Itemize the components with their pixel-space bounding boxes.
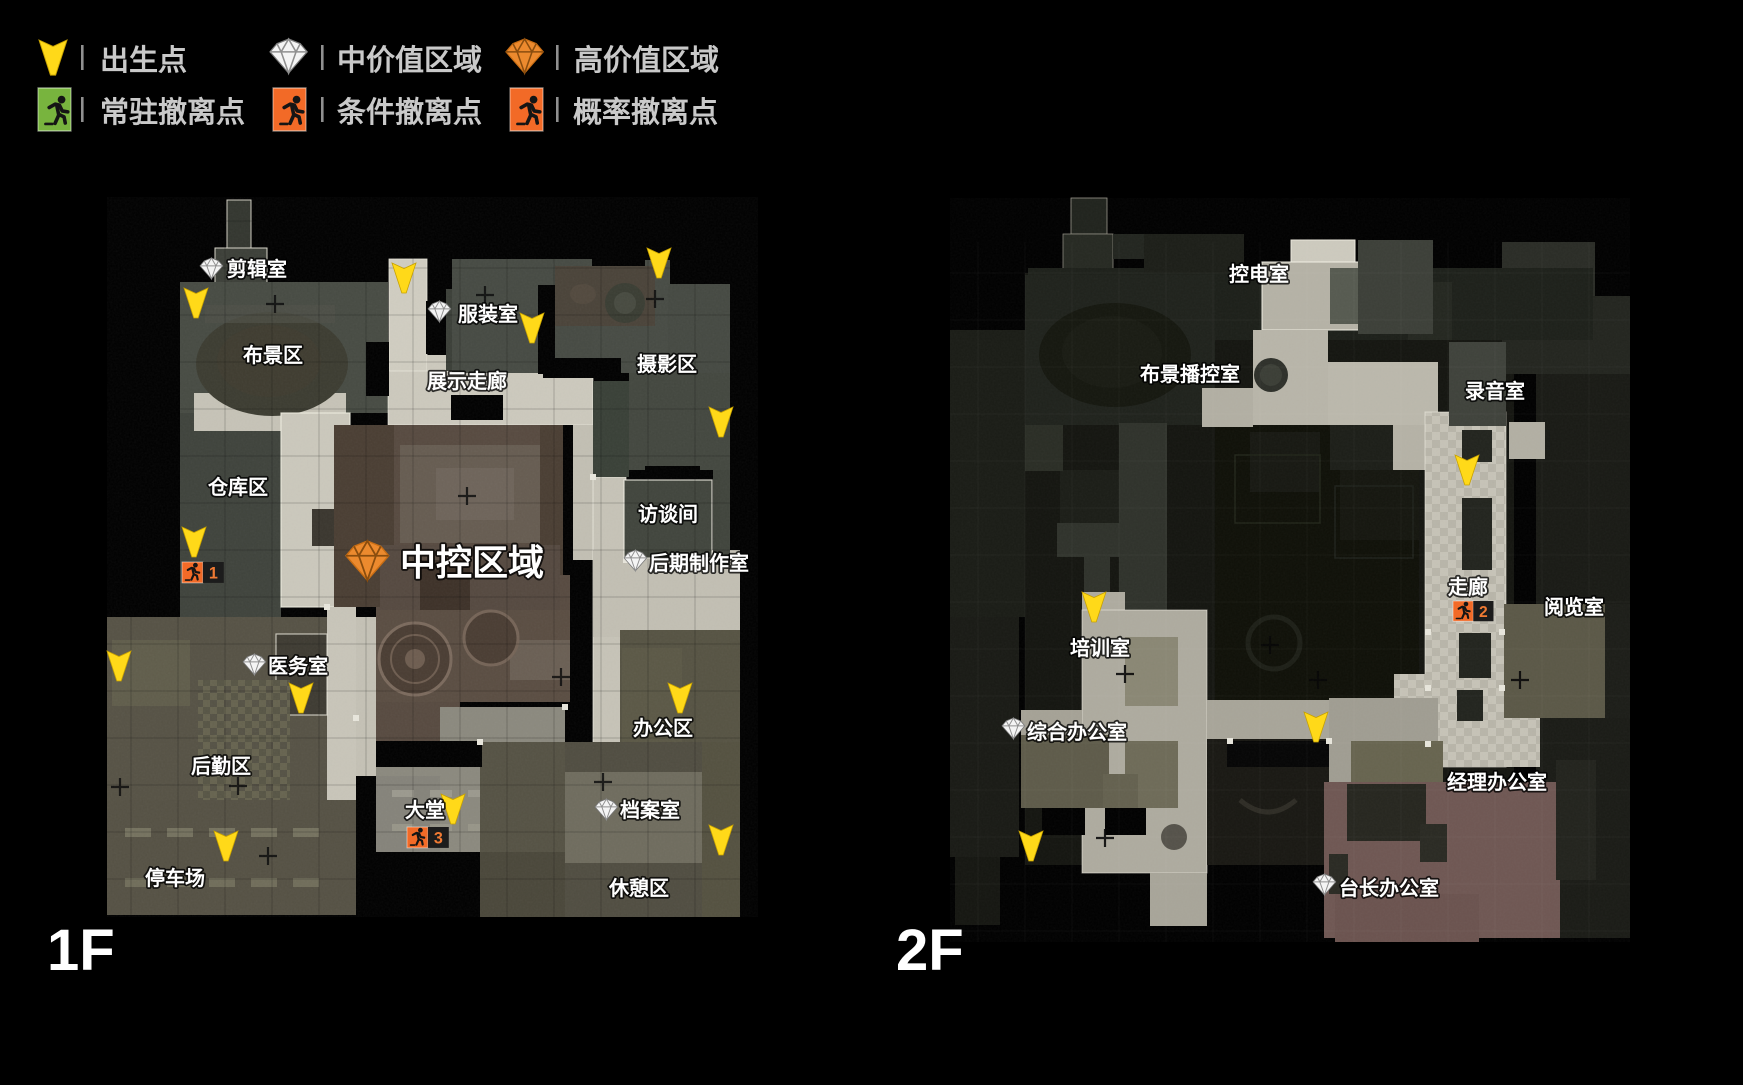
svg-text:大堂: 大堂 [405,799,445,822]
svg-text:剪辑室: 剪辑室 [227,257,287,281]
svg-text:录音室: 录音室 [1465,379,1525,403]
svg-text:后勤区: 后勤区 [191,754,251,778]
svg-text:休憩区: 休憩区 [608,876,669,900]
svg-text:台长办公室: 台长办公室 [1339,876,1439,900]
svg-text:阅览室: 阅览室 [1544,595,1604,619]
svg-text:经理办公室: 经理办公室 [1447,770,1547,794]
svg-text:出生点: 出生点 [100,44,187,77]
svg-text:服装室: 服装室 [458,302,518,326]
svg-text:访谈间: 访谈间 [638,502,698,526]
svg-text:1F: 1F [47,918,115,983]
svg-text:1: 1 [209,565,218,583]
svg-text:常驻撤离点: 常驻撤离点 [100,95,245,129]
svg-text:概率撤离点: 概率撤离点 [573,95,718,129]
svg-text:高价值区域: 高价值区域 [574,44,719,77]
svg-text:摄影区: 摄影区 [637,352,697,376]
svg-text:2F: 2F [896,918,964,983]
svg-text:仓库区: 仓库区 [207,475,268,499]
svg-text:中价值区域: 中价值区域 [337,44,482,77]
svg-text:条件撤离点: 条件撤离点 [337,95,482,129]
svg-text:培训室: 培训室 [1070,636,1130,660]
svg-text:布景播控室: 布景播控室 [1140,362,1240,386]
svg-text:办公区: 办公区 [633,716,693,740]
svg-text:走廊: 走廊 [1448,575,1488,599]
svg-text:中控区域: 中控区域 [400,542,544,583]
svg-text:医务室: 医务室 [268,654,328,678]
svg-text:控电室: 控电室 [1229,262,1289,286]
svg-text:后期制作室: 后期制作室 [649,551,749,575]
svg-text:展示走廊: 展示走廊 [427,369,507,393]
svg-text:布景区: 布景区 [243,343,303,367]
svg-text:停车场: 停车场 [145,866,205,890]
svg-text:档案室: 档案室 [620,798,680,822]
svg-text:3: 3 [434,830,443,848]
svg-text:2: 2 [1479,604,1488,621]
svg-text:综合办公室: 综合办公室 [1027,720,1127,744]
